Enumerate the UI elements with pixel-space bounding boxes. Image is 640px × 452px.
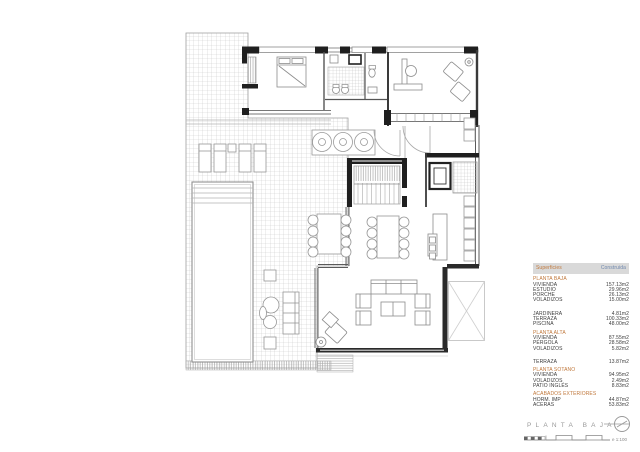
legend-row-label: PISCINA (533, 322, 554, 327)
legend-row-label: VOLADIZOS (533, 298, 563, 303)
legend-row-label: PATIO INGLÉS (533, 384, 568, 389)
legend-row-value: 13.87m2 (609, 360, 629, 365)
planter-with-trees (312, 130, 375, 155)
legend-row: PISCINA48.00m2 (533, 322, 629, 327)
legend-col-superficies: Superficies (536, 266, 562, 271)
staircase (347, 158, 407, 207)
legend-section: JARDINERA4.81m2TERRAZA100.33m2PISCINA48.… (533, 312, 629, 328)
legend-row-label: VOLADIZOS (533, 347, 563, 352)
bedroom-bed (277, 57, 306, 87)
legend-row-value: 8.83m2 (612, 384, 629, 389)
living-room-furniture (316, 280, 430, 347)
legend-row-value: 15.00m2 (609, 298, 629, 303)
bathrooms (328, 55, 377, 95)
legend-row-label: TERRAZA (533, 360, 557, 365)
x-marked-area (449, 282, 485, 341)
legend-row: TERRAZA13.87m2 (533, 360, 629, 365)
areas-legend: Superficies Construida PLANTA BAJAVIVIEN… (533, 263, 629, 408)
legend-row-label: ACERAS (533, 403, 554, 408)
legend-row-value: 53.83m2 (609, 403, 629, 408)
outdoor-dining-table (308, 214, 351, 257)
scale-note: e 1:100 (612, 437, 628, 442)
indoor-dining-table (367, 216, 409, 259)
legend-col-construida: Construida (601, 266, 626, 271)
legend-section: PLANTA BAJAVIVIENDA157.13m2ESTUDIO29.96m… (533, 277, 629, 303)
north-indicator-icon (604, 417, 630, 432)
study-furniture (394, 58, 473, 102)
legend-header: Superficies Construida (533, 263, 629, 274)
legend-row: ACERAS53.83m2 (533, 403, 629, 408)
legend-row-value: 48.00m2 (609, 322, 629, 327)
legend-section: ACABADOS EXTERIORESHORM. IMP44.87m2ACERA… (533, 392, 629, 408)
legend-section: TERRAZA13.87m2 (533, 360, 629, 365)
legend-row: VOLADIZOS5.82m2 (533, 347, 629, 352)
pool (192, 182, 253, 362)
legend-row-value: 5.82m2 (612, 347, 629, 352)
legend-section: PLANTA ALTAVIVIENDA87.55m2PÉRGOLA28.58m2… (533, 331, 629, 352)
legend-row: VOLADIZOS15.00m2 (533, 298, 629, 303)
legend-section: PLANTA SOTANOVIVIENDA94.95m2VOLADIZOS2.4… (533, 368, 629, 389)
drawing-sheet: PLANTA BAJA e 1:100 Superficies Construi… (0, 0, 640, 452)
door-swing-arcs (374, 126, 430, 156)
legend-row: PATIO INGLÉS8.83m2 (533, 384, 629, 389)
kitchen-island (428, 214, 447, 260)
legend-sections: PLANTA BAJAVIVIENDA157.13m2ESTUDIO29.96m… (533, 277, 629, 408)
sheet-title: PLANTA BAJA (527, 422, 616, 429)
scale-bar: e 1:100 (524, 436, 628, 443)
